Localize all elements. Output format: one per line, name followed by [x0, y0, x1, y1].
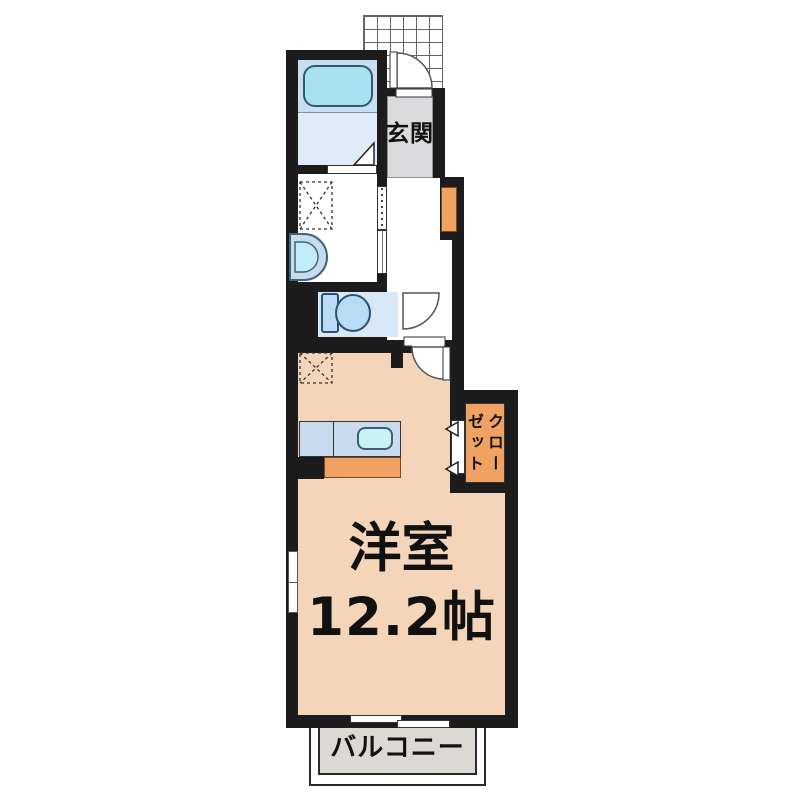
entrance-door-arc: [397, 53, 432, 88]
floor-plan: 玄関 洋室 12.2帖 クロー ゼット バルコニー: [0, 0, 800, 800]
main-door-arc: [412, 347, 444, 379]
closet-door-triangle-top: [446, 422, 458, 436]
closet-door-triangle-bottom: [446, 462, 458, 476]
entrance-door-leaf: [390, 52, 397, 88]
toilet-door-arc: [403, 293, 439, 329]
washbasin-bowl: [295, 242, 318, 272]
refrigerator-space: [300, 353, 332, 383]
closet-label: クロー ゼット: [466, 408, 504, 480]
bath-door-swing-triangle: [354, 143, 374, 165]
toilet-bowl: [336, 295, 370, 331]
washing-machine-space: [300, 182, 332, 229]
room-size-label: 12.2帖: [298, 588, 505, 649]
genkan-label: 玄関: [384, 121, 436, 147]
fixture-layer: [0, 0, 800, 800]
entrance-threshold: [396, 89, 432, 97]
main-door-leaf: [443, 347, 450, 380]
balcony-label: バルコニー: [318, 734, 477, 764]
room-name-label: 洋室: [298, 519, 505, 580]
